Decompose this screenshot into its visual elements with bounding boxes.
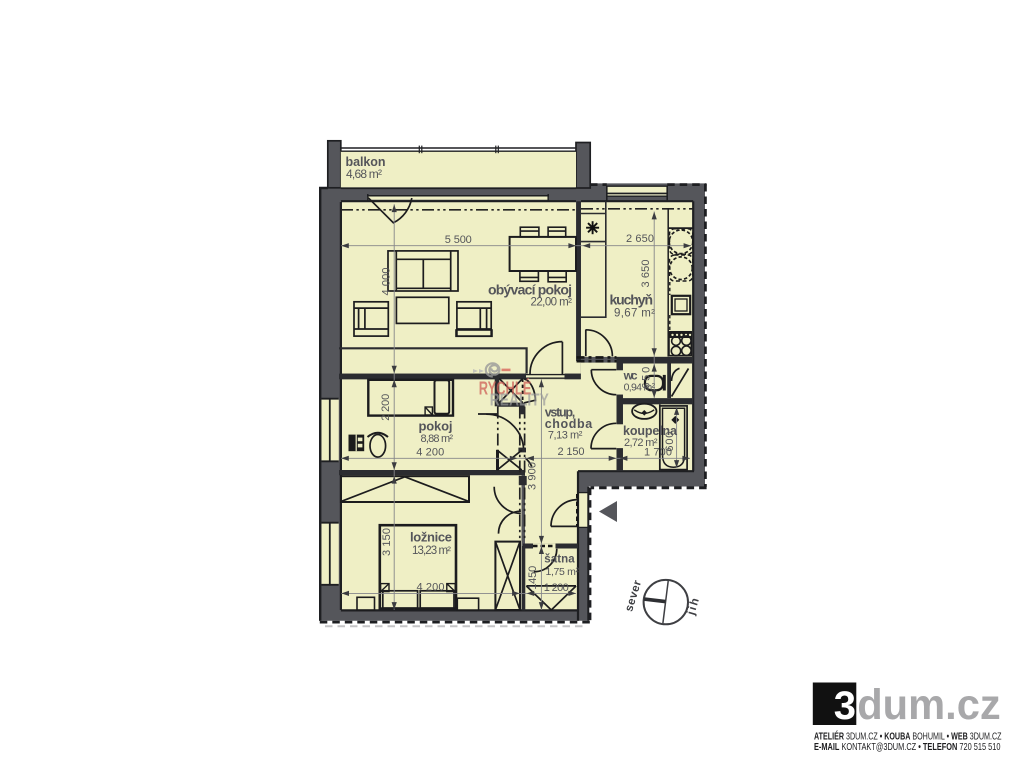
svg-text:22,00 m²: 22,00 m² (531, 297, 573, 309)
svg-text:4 200: 4 200 (417, 581, 445, 593)
svg-text:7,13 m²: 7,13 m² (548, 430, 583, 442)
svg-text:4 000: 4 000 (381, 268, 393, 296)
svg-text:dum.cz: dum.cz (857, 682, 1001, 729)
svg-text:pokoj: pokoj (419, 419, 453, 434)
svg-text:4 200: 4 200 (416, 446, 444, 458)
svg-text:1,75 m²: 1,75 m² (546, 566, 580, 578)
svg-text:3 650: 3 650 (640, 260, 652, 288)
svg-text:2 150: 2 150 (558, 446, 585, 458)
svg-text:šatna: šatna (544, 553, 575, 565)
svg-text:9,67 m²: 9,67 m² (614, 308, 655, 320)
svg-text:3: 3 (834, 684, 856, 728)
svg-text:2,72 m²: 2,72 m² (624, 437, 658, 449)
svg-text:ATELIÉR 3DUM.CZ • KOUBA BOHUMI: ATELIÉR 3DUM.CZ • KOUBA BOHUMIL • WEB 3D… (814, 730, 1001, 743)
svg-text:kuchyň: kuchyň (610, 292, 654, 308)
svg-text:2 200: 2 200 (380, 394, 392, 421)
svg-text:5 500: 5 500 (445, 234, 472, 246)
svg-text:koupelna: koupelna (623, 424, 678, 438)
svg-text:ložnice: ložnice (410, 529, 452, 544)
svg-text:4,68 m²: 4,68 m² (346, 167, 382, 181)
svg-text:0,94 m²: 0,94 m² (624, 381, 656, 393)
svg-text:13,23 m²: 13,23 m² (412, 545, 451, 557)
svg-text:3 150: 3 150 (381, 528, 393, 556)
svg-text:1450: 1450 (527, 566, 539, 590)
svg-text:3 900: 3 900 (526, 462, 538, 490)
svg-text:2 650: 2 650 (626, 233, 654, 245)
svg-text:1 200: 1 200 (544, 582, 569, 594)
svg-text:8,88 m²: 8,88 m² (421, 433, 454, 445)
svg-text:obývací pokoj: obývací pokoj (488, 282, 572, 298)
svg-text:E-MAIL KONTAKT@3DUM.CZ • TELEF: E-MAIL KONTAKT@3DUM.CZ • TELEFON 720 515… (814, 742, 1001, 753)
svg-text:REALITY: REALITY (490, 389, 549, 409)
